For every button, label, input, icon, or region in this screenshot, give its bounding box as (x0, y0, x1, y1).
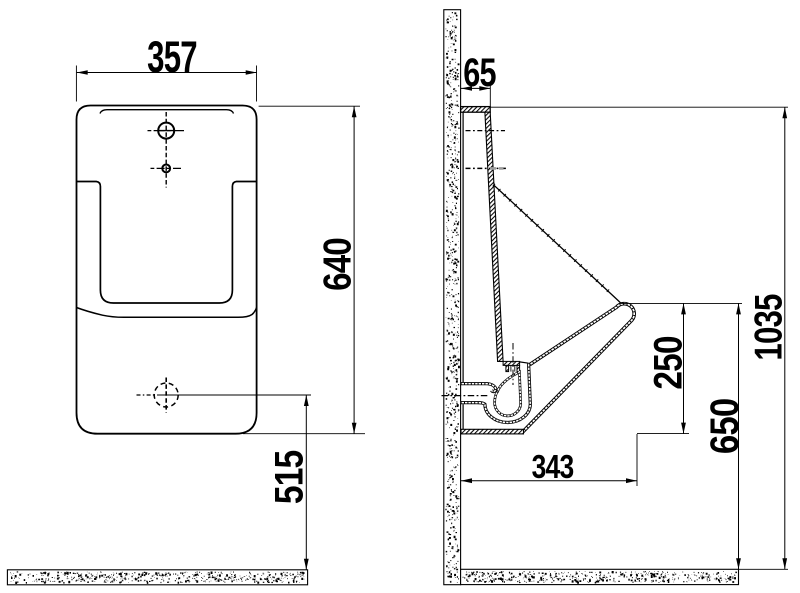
svg-text:515: 515 (267, 450, 311, 504)
svg-text:65: 65 (463, 50, 496, 95)
svg-text:357: 357 (147, 33, 197, 83)
svg-text:250: 250 (646, 336, 690, 389)
svg-text:1035: 1035 (747, 294, 790, 360)
svg-text:640: 640 (315, 238, 359, 291)
svg-text:650: 650 (702, 399, 747, 455)
svg-text:343: 343 (532, 449, 574, 485)
